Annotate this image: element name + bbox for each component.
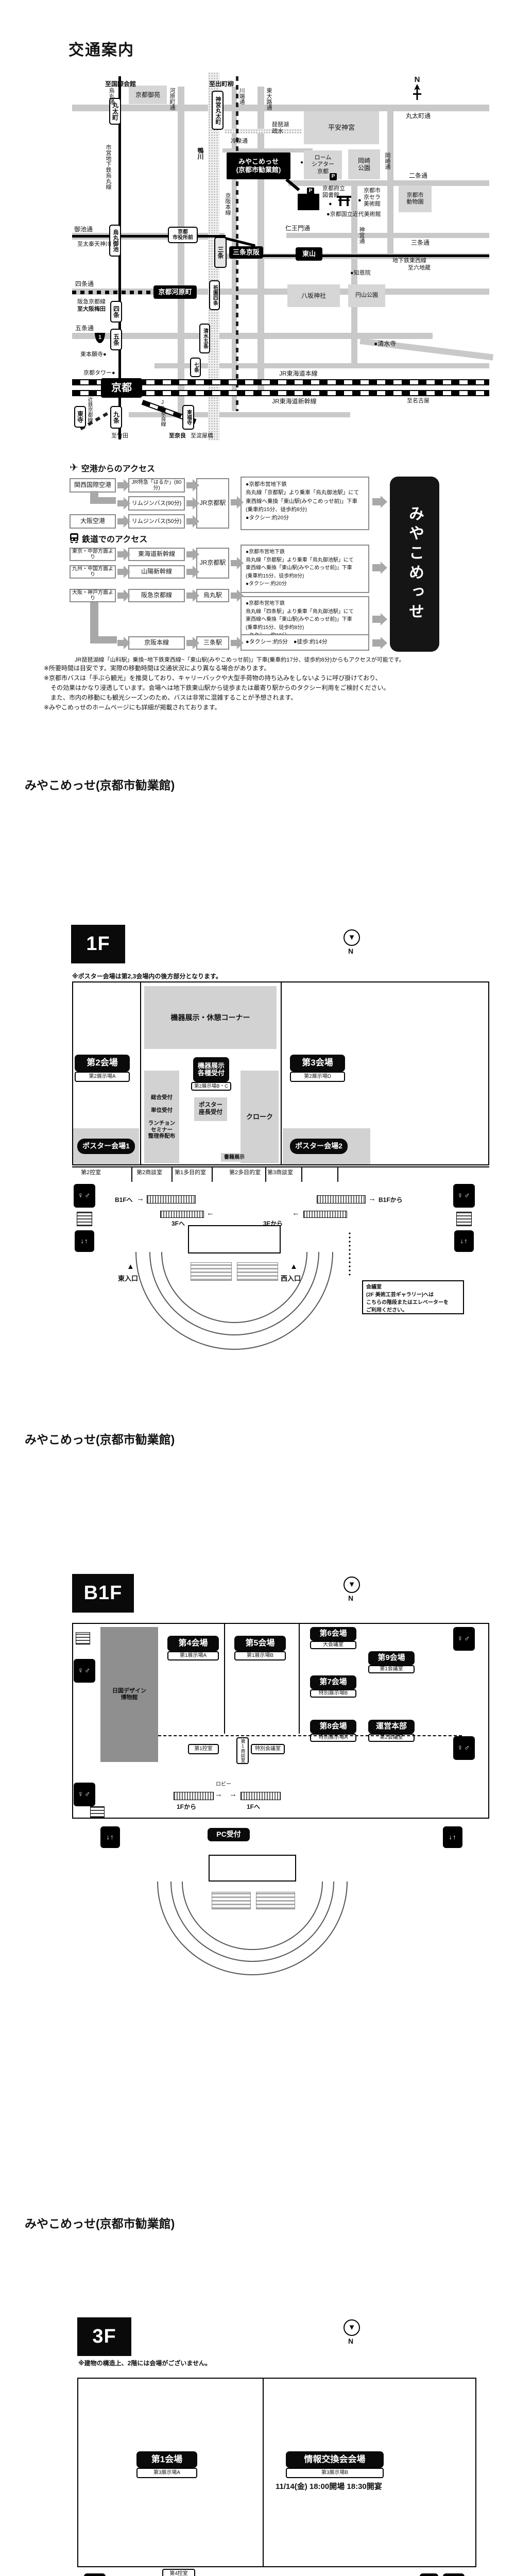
nijo-dori-label: 二条通 [409,172,427,179]
kansai-airport-box: 関西国際空港 [70,478,116,493]
compass-n-label: N [348,1594,353,1603]
osaka-kobe-box: 大阪・神戸方面より [70,589,116,602]
station-kyoto-kawaramachi: 京都河原町 [153,285,197,299]
gojo-dori-road [72,333,433,339]
tokaido-shinkansen-box: 東海道新幹線 [128,548,185,561]
keihan-box: 京阪本線 [128,636,185,650]
rooms-wall [212,1166,213,1182]
flow-arrow [117,569,124,575]
room8-label: 第8会場 [310,1720,356,1734]
room3-label: 第3会場 [290,1055,345,1072]
to-b1f-label: B1Fへ [115,1196,133,1204]
exchange-sub: 第3展示場B [286,2468,384,2478]
flow-arrow [372,564,381,571]
meeting-room2-label: 第2商談室 [136,1170,162,1176]
subway-info-box2: ●京都市営地下鉄 烏丸線「京都駅」より乗車「烏丸御池駅」にて 東西線へ乗換「東山… [241,545,369,593]
subway-info-box: ●京都市営地下鉄 烏丸線「京都駅」より乗車「烏丸御池駅」にて 東西線へ乗換「東山… [241,477,369,530]
restroom-icon: ♀♂ [74,1659,95,1683]
jr-kyoto-box2: JR京都駅 [196,548,229,579]
elevator-icon: ↓↑ [443,1826,462,1848]
shichijo-dori-road [154,363,489,368]
station-kyoto: 京都 [101,378,142,398]
stairs [456,1212,472,1226]
poster-area1-label: ポスター会場1 [77,1139,135,1154]
kyoto-pref-library-dot: ● [329,201,332,208]
marutamachi-dori-road [72,105,489,111]
book-display: 書籍展示 [221,1153,248,1162]
momak-label: ●京都国立近代美術館 [327,211,381,218]
room2-sub: 第2展示場A [75,1072,130,1082]
note-line: ※京都市バスは「手ぶら観光」を推奨しており、キャリーバックや大型手荷物の持ち込み… [44,673,382,683]
niomon-dori-label: 仁王門通 [285,225,310,232]
cloakroom: クローク [241,1071,279,1163]
compass-n-label: N [408,75,426,84]
station-kyoto-shiyakusho-mae: 京都 市役所前 [168,227,198,243]
kyocera-museum-dot: ● [358,197,362,204]
sanjo-dori-label: 三条通 [411,239,430,246]
kyocera-museum: 京都市 京セラ 美術館 [364,188,381,208]
heian-jingu: 平安神宮 [304,111,379,144]
multipurpose2-label: 第2多目的室 [229,1170,261,1176]
hankyu-box: 阪急京都線 [128,589,185,602]
okazaki-dori-label: 岡崎通 [384,152,390,170]
exchange-datetime: 11/14(金) 18:00開場 18:30開宴 [276,2482,382,2492]
limousine50-box: リムジンバス(50分) [128,514,185,529]
flow-arrow [186,500,193,506]
access-section: ✈ 空港からのアクセス 鉄道でのアクセス 関西国際空港JR特急「はるか」(80分… [70,461,451,677]
stairs [77,1212,92,1226]
okazaki-park: 岡崎 公園 [348,149,380,179]
yamashina-note: JR琵琶湖線「山科駅」乗換~地下鉄東西線~「東山駅(みやこめっせ前)」下車(乗車… [75,657,405,664]
room4-sub: 第1展示場A [167,1651,219,1660]
airplane-icon: ✈ [70,461,78,474]
limousine90-box: リムジンバス(90分) [128,496,185,511]
sanjo-station-box: 三条駅 [196,636,229,650]
flow-arrow [186,551,193,557]
rohm-theatre-dot: ● [300,160,303,166]
hq-label: 運営本部 [368,1720,415,1734]
floor-map-1f: 1F※ポスター会場は第2,3会場内の後方部分となります。▼N機器展示・休憩コーナ… [59,922,492,1396]
gojo-dori-label: 五条通 [75,325,94,332]
flow-arrow [372,498,381,505]
to-rokujizo-label: 至六地蔵 [408,265,431,272]
note-line: その効果はかなり浸透しています。会場へは地下鉄東山駅から徒歩または最寄り駅からの… [50,683,389,692]
reisen-dori-label: 冷泉通 [231,138,248,145]
venue-building [298,194,319,210]
rooms-wall [301,1166,302,1182]
tokyo-box: 東京・中部方面より [70,548,116,561]
elevator-icon: ↓↑ [420,2573,438,2576]
higashi-honganji-label: 東本願寺● [80,351,107,358]
escalator [241,1792,281,1800]
kiyomizu-dera-label: ●清水寺 [374,340,396,347]
to-osaka-umeda-label: 至大阪梅田 [77,306,106,313]
hall-wall [263,2378,264,2567]
waiting-room2-label: 第2控室 [81,1170,101,1176]
elevator-icon: ↓↑ [454,1230,474,1252]
room7-label: 第7会場 [310,1675,356,1689]
traffic-guide-page: { "title": "交通案内", "section_heading": "み… [0,0,515,2576]
north-arrow-icon [411,84,423,101]
biwako-sosui-label: 琵琶湖 疏水 [272,122,289,135]
note-line: また、市内の移動にも観光シーズンのため、バスは非常に混雑することが予想されます。 [50,693,297,702]
floor-badge-1f: 1F [71,925,125,963]
station-kujo: 九条 [110,406,122,429]
restroom-icon: ♀♂ [453,1184,475,1208]
page-title: 交通案内 [68,37,134,60]
note-line: ※所要時間は目安です。実際の移動時間は交通状況により異なる場合があります。 [44,664,270,673]
room5-sub: 第1展示場B [234,1651,286,1660]
station-shichijo: 七条 [190,358,201,377]
street-map-kyoto: N 丸太町神宮丸太町烏丸御池三条四条五条祇園四条清水五条七条九条東寺東福寺京都 … [72,72,489,440]
pc-reception-label: PC受付 [208,1828,250,1841]
flow-arrow [117,592,124,599]
yasaka-shrine: 八坂神社 [287,284,340,307]
branch-bar [90,636,117,643]
station-jingu-marutamachi: 神宮丸太町 [212,91,224,130]
flow-arrow [372,639,381,647]
arrow-right-icon: → [215,1790,222,1799]
floor-badge-3f: 3F [77,2317,131,2356]
multipurpose1-label: 第1多目的室 [175,1170,206,1176]
room3-sub: 第2展示場D [290,1072,345,1082]
flow-arrow [231,499,237,505]
escalator [303,1211,347,1218]
station-sanjo-keihan: 三条京阪 [229,246,263,259]
restroom-icon: ♀♂ [453,1627,475,1651]
to-nara-label: 至奈良 [169,433,186,439]
escalator [147,1195,196,1204]
exchange-label: 情報交換会会場 [286,2451,384,2468]
osaka-airport-box: 大阪空港 [70,514,116,529]
escalator [174,1792,214,1800]
to-kokusaikaikan-label: 至国際会館 [105,80,136,88]
floor-map-b1f: B1F▼N日図デザイン 博物館第4会場第1展示場A第5会場第1展示場B第6会場大… [59,1566,492,2030]
kyoto-gyoen: 京都御苑 [129,86,167,104]
atrium-seats [256,1892,295,1909]
to-demachiyanagi-label: 至出町柳 [209,80,234,88]
kawabata-dori-label: 川端通 [238,88,244,105]
east-entrance-arrow: ▲ [127,1262,134,1272]
flow-arrow [186,640,193,646]
hall-wall [224,1623,225,1734]
special-meeting-room-label: 特別会議室 [251,1744,285,1754]
route1-shield: 1 [95,333,105,343]
taxi-walk-info-box: ●タクシー:約5分 ●徒歩:約14分 [241,634,369,651]
hall-wall [140,981,141,1165]
station-kiyomizu-gojo: 清水五条 [199,324,210,353]
flow-arrow [231,640,237,646]
station-gion-shijo: 祇園四条 [209,280,220,310]
tozai-subway-line-e [253,255,489,257]
room6-sub: 大会議室 [310,1641,356,1649]
karasuma-dori-label: 烏丸通 [108,88,114,105]
room6-label: 第6会場 [310,1627,356,1641]
airport-access-heading: ✈ 空港からのアクセス [70,461,155,474]
escalator [160,1211,204,1218]
equipment-rest-area: 機器展示・休憩コーナー [144,986,277,1049]
lobby-label: ロビー [216,1782,231,1788]
jr-tokaido-label: JR東海道本線 [279,370,318,377]
restroom-icon: ♀♂ [74,1783,95,1806]
tozai-subway-line-w [72,235,226,238]
karasuma-subway-label: 市営地下鉄烏丸線 [105,144,111,190]
station-karasuma-oike: 烏丸御池 [109,225,121,257]
flow-arrow [372,616,381,623]
arrow-right-icon: → [229,1790,237,1799]
venue-section-heading: みやこめっせ(京都市勧業館) [25,1430,175,1447]
restroom-icon: ♀♂ [74,1184,95,1208]
waiting-room1-label: 第1控室 [188,1744,219,1754]
compass-north-icon: N [408,75,426,102]
floor-note: ※建物の構造上、2階には会場がございません。 [78,2360,211,2367]
note-line: ※みやこめっせのホームページにも詳細が掲載されております。 [44,703,221,712]
sanyo-shinkansen-box: 山陽新幹線 [128,565,185,579]
station-shijo: 四条 [110,301,122,323]
equip-reception-sub: 第2展示場B・C [191,1082,231,1091]
rail-access-heading: 鉄道でのアクセス [70,532,147,545]
hankyu-label: 阪急京都線 [77,299,106,306]
branch-bar [90,497,116,504]
to-3f-label: 3Fへ [171,1220,185,1227]
kamogawa-label: 鴨川 [197,147,203,160]
to-uzumasa-label: 至太秦天神川 [77,241,111,248]
flow-arrow [117,482,124,488]
dotted-path [348,1231,352,1278]
flow-arrow [186,569,193,575]
flow-arrow [186,482,193,488]
station-higashiyama: 東山 [296,247,322,261]
venue-banner: みやこめっせ [390,477,439,652]
jingu-dori-label: 神宮通 [358,227,364,244]
room4-label: 第4会場 [167,1636,219,1651]
atrium-seats [191,1262,232,1281]
kyoto-zoo: 京都市 動物園 [399,185,432,212]
flow-arrow [186,518,193,524]
room5-label: 第5会場 [234,1636,286,1651]
parking-icon: P [307,188,314,195]
rooms-wall [171,1166,173,1182]
kyushu-box: 九州・中国方面より [70,565,116,579]
waiting-room4-label: 第4控室 [162,2569,195,2576]
halls-dash [158,1735,462,1736]
equip-reception-label: 機器展示 各種受付 [193,1057,229,1082]
higashioji-dori-label: 東大路通 [266,88,271,110]
kawaramachi-dori-label: 河原町通 [169,88,175,110]
rail-access-title: 鉄道でのアクセス [82,532,147,545]
parking-icon: P [330,173,337,180]
rooms-wall [265,1166,266,1182]
rooms-wall [72,1166,489,1167]
poster-location-note: ※ポスター会場は第2,3会場内の後方部分となります。 [72,973,222,980]
to-takeda-label: 至竹田 [111,433,128,439]
tozai-line-label: 地下鉄東西線 [392,258,426,264]
train-icon [70,533,79,544]
east-entrance-label: 東入口 [118,1275,138,1283]
meeting-room1-label: 第1商談室 [236,1737,249,1764]
station-toji: 東寺 [74,406,86,428]
haruka-box: JR特急「はるか」(80分) [128,478,185,493]
restroom-icon: ♀♂ [443,2573,465,2576]
elevator-icon: ↓↑ [75,1230,94,1252]
stairs [90,1806,105,1818]
atrium-seats [212,1892,251,1909]
stairs [76,1632,90,1645]
airport-access-title: 空港からのアクセス [81,462,155,474]
room9-sub: 第1会議室 [368,1665,415,1673]
arrow-right-icon: → [368,1194,376,1204]
access-notes: ※所要時間は目安です。実際の移動時間は交通状況により異なる場合があります。※京都… [44,664,497,715]
flow-arrow [231,592,237,599]
station-gojo: 五条 [110,329,122,350]
room1-label: 第1会場 [136,2451,197,2468]
poster-area2-label: ポスター会場2 [290,1139,348,1154]
venue-section-heading: みやこめっせ(京都市勧業館) [25,775,175,793]
compass-n-label: N [348,947,353,956]
kyoto-tower-label: 京都タワー● [83,370,115,377]
from-1f-label: 1Fから [177,1803,196,1810]
escalator [317,1195,366,1204]
atrium-seats [237,1262,278,1281]
venue-callout: みやこめっせ (京都市勧業館) [227,152,290,179]
to-nagoya-label: 至名古屋 [407,398,430,404]
room2-label: 第2会場 [75,1055,130,1072]
meeting-room3-label: 第3商談室 [267,1170,293,1176]
flow-arrow [117,500,124,506]
kyoto-pref-library: 京都府立 図書館 [322,185,345,199]
hall-wall [299,1623,300,1734]
station-tofukuji: 東福寺 [182,405,194,430]
chion-in-label: ●知恩院 [350,270,371,277]
compass-icon: ▼ [344,2319,360,2336]
to-1f-label: 1Fへ [247,1803,260,1810]
maruyama-park: 円山公園 [348,284,385,307]
from-b1f-label: B1Fから [379,1196,403,1204]
compass-icon: ▼ [344,929,360,946]
flow-arrow [117,551,124,557]
keihan-line-label: 京阪本線 [225,193,230,215]
room1-sub: 第3展示場A [136,2468,197,2478]
meeting-room-note: 会議室 (2F 美術工芸ギャラリー)へは こちらの階段またはエレベーターを ご利… [362,1280,464,1314]
atrium-stage [188,1225,281,1253]
marutamachi-dori-label: 丸太町通 [406,112,431,120]
floor-map-3f: 3F※建物の構造上、2階には会場がございません。▼N第1会場第3展示場A情報交換… [59,2205,492,2576]
restroom-icon: ♀♂ [84,2573,106,2576]
jr-nara-label: JR奈良線 [160,400,165,427]
floor-badge-b1f: B1F [72,1574,134,1613]
tozai-subway-line-c [223,236,255,247]
arrow-left-icon: ← [207,1209,214,1218]
hall-wall [281,981,282,1165]
atrium-stage [209,1855,296,1882]
arrow-left-icon: ← [292,1209,300,1218]
karasuma-station-box: 烏丸駅 [196,589,229,602]
kawaramachi-dori-road [178,87,184,416]
compass-n-label: N [348,2337,353,2346]
restroom-icon: ♀♂ [453,1736,475,1760]
station-sanjo: 三条 [214,237,227,268]
flow-arrow [117,518,124,524]
rooms-wall [131,1166,132,1182]
nizu-design-museum: 日図デザイン 博物館 [100,1627,158,1762]
arrow-right-icon: → [136,1194,144,1204]
jr-kyoto-box: JR京都駅 [196,478,229,529]
rooms-wall [337,1166,338,1182]
compass-icon: ▼ [344,1577,360,1593]
flow-arrow [186,592,193,599]
flow-arrow [231,560,237,566]
oike-dori-label: 御池通 [74,226,93,233]
to-yodoyabashi-label: 至淀屋橋 [191,433,213,439]
okazaki-dori-road [387,105,393,254]
elevator-icon: ↓↑ [100,1826,120,1848]
keihan-line [236,76,238,411]
flow-arrow [117,640,124,646]
room9-label: 第9会場 [368,1651,415,1665]
room7-sub: 特別展示場B [310,1689,356,1698]
reception-area: 総合受付 単位受付 ランチョン セミナー 整理券配布 [144,1071,179,1163]
poster-chair-reception: ポスター 座長受付 [194,1097,227,1121]
shijo-dori-label: 四条通 [75,280,94,287]
kintetsu-label: 近鉄京都線 [87,397,92,422]
jr-shinkansen-label: JR東海道新幹線 [272,398,317,405]
